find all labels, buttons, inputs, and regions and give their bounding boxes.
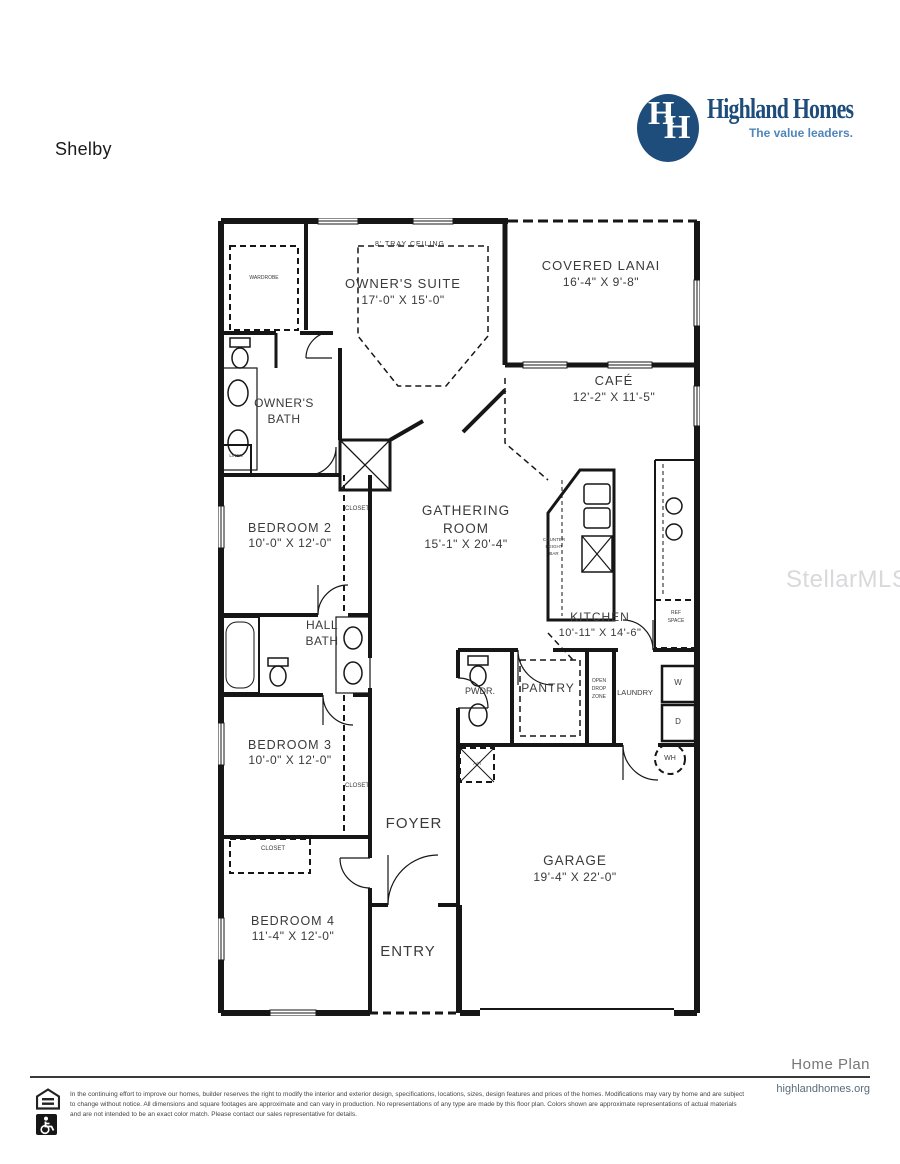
- counter-height-bar-label: COUNTER HEIGHT BAR: [543, 536, 565, 558]
- drop-zone-label: OPEN DROP ZONE: [592, 677, 606, 701]
- dryer-label: D: [675, 717, 681, 727]
- room-label-owners-bath: OWNER'S BATH: [242, 396, 326, 427]
- disclaimer-text: In the continuing effort to improve our …: [70, 1090, 746, 1120]
- stellar-mls-watermark: StellarMLS: [786, 566, 900, 594]
- room-label-cafe: CAFÉ 12'-2" X 11'-5": [573, 373, 655, 405]
- footer-icons: [36, 1088, 62, 1139]
- room-label-gathering-room: GATHERING ROOM 15'-1" X 20'-4": [410, 502, 522, 553]
- room-label-pantry: PANTRY: [521, 681, 575, 697]
- page-title: Shelby: [55, 139, 112, 160]
- room-label-bedroom-4: BEDROOM 4 11'-4" X 12'-0": [251, 913, 335, 945]
- room-label-owners-suite: OWNER'S SUITE 17'-0" X 15'-0": [345, 276, 461, 308]
- linen-label: LINEN: [229, 453, 242, 459]
- closet-label: CLOSET: [345, 783, 369, 791]
- room-label-bedroom-3: BEDROOM 3 10'-0" X 12'-0": [248, 737, 332, 769]
- room-label-entry: ENTRY: [380, 942, 436, 962]
- air-handler-label: A/H: [473, 761, 481, 767]
- home-plan-label: Home Plan: [791, 1056, 870, 1073]
- monogram-letter: H: [664, 111, 690, 145]
- highland-homes-logo: H H Highland Homes The value leaders.: [637, 94, 867, 164]
- shower: [221, 440, 494, 782]
- footer-divider: [30, 1076, 870, 1078]
- kitchen-counter: [548, 470, 682, 620]
- logo-tagline: The value leaders.: [707, 126, 853, 140]
- room-label-laundry: LAUNDRY: [617, 688, 653, 698]
- closet-label: CLOSET: [345, 506, 369, 514]
- wardrobe-label: WARDROBE: [249, 275, 278, 282]
- room-label-powder: PWDR.: [465, 686, 495, 698]
- ref-space-label: REF SPACE: [668, 610, 685, 625]
- room-label-foyer: FOYER: [386, 814, 443, 834]
- room-label-bedroom-2: BEDROOM 2 10'-0" X 12'-0": [248, 520, 332, 552]
- accessibility-icon: [36, 1114, 57, 1135]
- website-label: highlandhomes.org: [776, 1083, 870, 1095]
- washer-label: W: [674, 678, 682, 688]
- closet-label: CLOSET: [261, 846, 285, 854]
- logo-monogram-oval: H H: [637, 94, 699, 162]
- logo-name: Highland Homes: [707, 94, 853, 126]
- water-heater-label: WH: [664, 754, 676, 763]
- floor-plan: 8' TRAY CEILING OWNER'S SUITE 17'-0" X 1…: [218, 218, 700, 1016]
- room-label-covered-lanai: COVERED LANAI 16'-4" X 9'-8": [542, 258, 660, 290]
- room-label-hall-bath: HALL BATH: [305, 618, 338, 649]
- equal-housing-icon: [36, 1088, 60, 1110]
- tray-ceiling-note: 8' TRAY CEILING: [375, 240, 445, 249]
- room-label-kitchen: KITCHEN 10'-11" X 14'-6": [559, 610, 642, 640]
- floor-plan-page: Shelby H H Highland Homes The value lead…: [0, 0, 900, 1164]
- room-label-garage: GARAGE 19'-4" X 22'-0": [533, 852, 616, 885]
